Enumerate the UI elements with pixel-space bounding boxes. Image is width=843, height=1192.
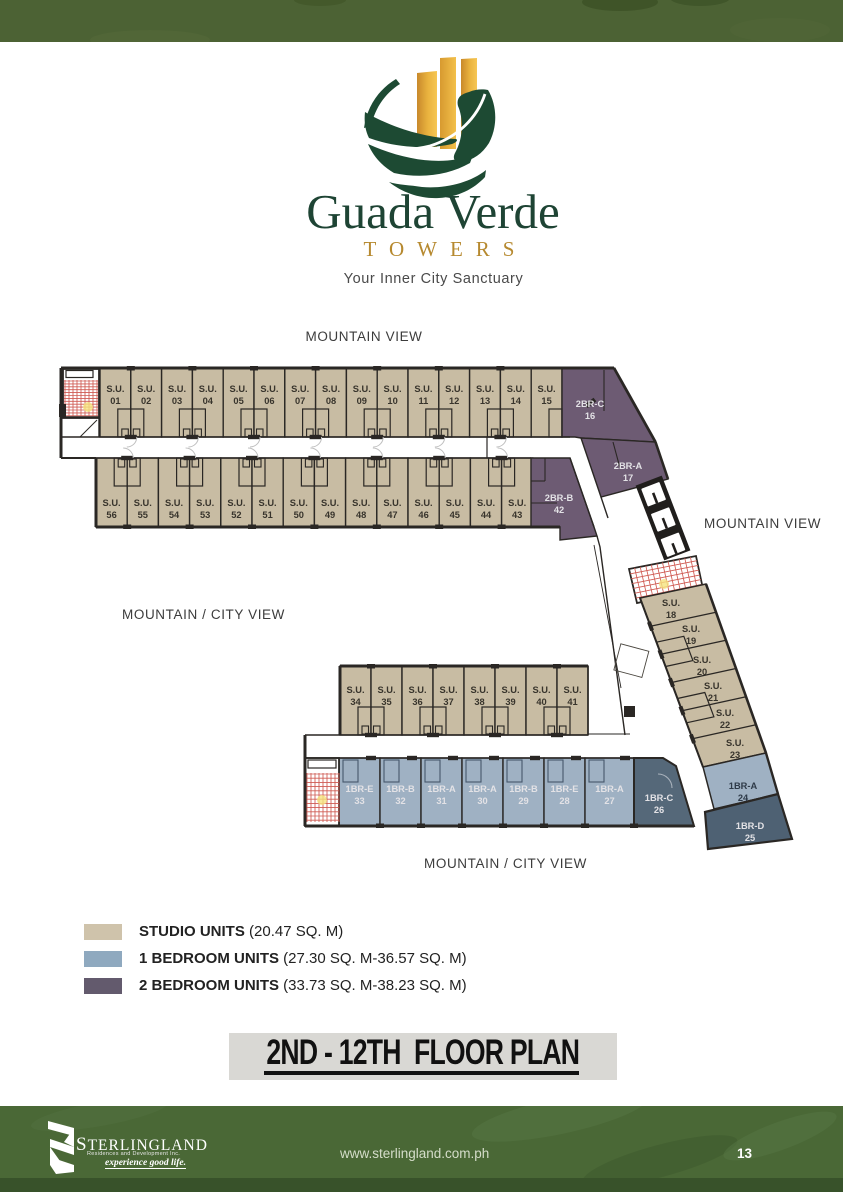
svg-text:48: 48 [356,510,366,520]
svg-text:S.U.: S.U. [501,685,519,695]
svg-text:S.U.: S.U. [446,498,464,508]
svg-text:16: 16 [585,411,595,421]
svg-text:36: 36 [412,697,422,707]
svg-text:S.U.: S.U. [134,498,152,508]
svg-text:S.U.: S.U. [532,685,550,695]
svg-text:20: 20 [697,667,707,677]
svg-text:35: 35 [381,697,391,707]
svg-text:S.U.: S.U. [227,498,245,508]
svg-text:S.U.: S.U. [259,498,277,508]
svg-text:28: 28 [559,796,569,806]
svg-text:46: 46 [418,510,428,520]
svg-text:19: 19 [686,636,696,646]
svg-text:05: 05 [233,396,243,406]
svg-text:S.U.: S.U. [563,685,581,695]
svg-text:04: 04 [203,396,214,406]
svg-text:S.U.: S.U. [260,384,278,394]
svg-text:S.U.: S.U. [538,384,556,394]
svg-text:1BR-A: 1BR-A [595,784,624,794]
svg-text:S.U.: S.U. [352,498,370,508]
svg-text:09: 09 [357,396,367,406]
svg-text:S.U.: S.U. [377,685,395,695]
svg-text:S.U.: S.U. [507,384,525,394]
svg-text:21: 21 [708,693,718,703]
svg-text:1BR-B: 1BR-B [386,784,415,794]
svg-text:32: 32 [395,796,405,806]
svg-text:S.U.: S.U. [415,498,433,508]
svg-text:39: 39 [505,697,515,707]
svg-text:56: 56 [106,510,116,520]
svg-text:2BR-A: 2BR-A [614,461,643,471]
svg-text:S.U.: S.U. [439,685,457,695]
svg-text:47: 47 [387,510,397,520]
svg-text:18: 18 [666,610,676,620]
svg-text:1BR-A: 1BR-A [729,781,758,791]
svg-text:08: 08 [326,396,336,406]
svg-text:34: 34 [350,697,361,707]
svg-text:S.U.: S.U. [476,384,494,394]
svg-text:S.U.: S.U. [199,384,217,394]
svg-text:S.U.: S.U. [508,498,526,508]
svg-text:29: 29 [518,796,528,806]
svg-text:15: 15 [541,396,551,406]
svg-text:10: 10 [387,396,397,406]
svg-text:S.U.: S.U. [321,498,339,508]
svg-text:03: 03 [172,396,182,406]
svg-text:44: 44 [481,510,492,520]
svg-text:22: 22 [720,720,730,730]
svg-text:S.U.: S.U. [693,655,711,665]
svg-text:S.U.: S.U. [682,624,700,634]
svg-text:S.U.: S.U. [470,685,488,695]
svg-text:S.U.: S.U. [290,498,308,508]
svg-text:06: 06 [264,396,274,406]
svg-text:12: 12 [449,396,459,406]
svg-text:38: 38 [474,697,484,707]
svg-text:S.U.: S.U. [196,498,214,508]
svg-text:31: 31 [436,796,446,806]
svg-text:S.U.: S.U. [291,384,309,394]
svg-text:02: 02 [141,396,151,406]
svg-text:S.U.: S.U. [726,738,744,748]
svg-text:S.U.: S.U. [704,681,722,691]
svg-text:S.U.: S.U. [662,598,680,608]
svg-text:27: 27 [604,796,614,806]
svg-text:33: 33 [354,796,364,806]
svg-text:42: 42 [554,505,564,515]
svg-text:11: 11 [418,396,428,406]
svg-text:37: 37 [443,697,453,707]
svg-text:51: 51 [262,510,272,520]
svg-text:14: 14 [511,396,522,406]
svg-text:S.U.: S.U. [137,384,155,394]
svg-text:S.U.: S.U. [322,384,340,394]
svg-text:S.U.: S.U. [445,384,463,394]
svg-text:50: 50 [294,510,304,520]
svg-text:S.U.: S.U. [716,708,734,718]
svg-text:S.U.: S.U. [165,498,183,508]
svg-text:40: 40 [536,697,546,707]
svg-text:13: 13 [480,396,490,406]
svg-text:49: 49 [325,510,335,520]
svg-text:S.U.: S.U. [230,384,248,394]
svg-text:01: 01 [110,396,120,406]
svg-text:S.U.: S.U. [346,685,364,695]
svg-text:S.U.: S.U. [106,384,124,394]
svg-text:25: 25 [745,833,755,843]
svg-text:07: 07 [295,396,305,406]
svg-text:26: 26 [654,805,664,815]
svg-text:1BR-A: 1BR-A [468,784,497,794]
svg-text:55: 55 [138,510,148,520]
svg-text:23: 23 [730,750,740,760]
svg-text:1BR-E: 1BR-E [551,784,579,794]
svg-text:S.U.: S.U. [477,498,495,508]
svg-text:S.U.: S.U. [414,384,432,394]
svg-text:17: 17 [623,473,633,483]
svg-text:S.U.: S.U. [103,498,121,508]
svg-text:30: 30 [477,796,487,806]
svg-text:1BR-A: 1BR-A [427,784,456,794]
svg-text:2BR-C: 2BR-C [576,399,605,409]
svg-text:53: 53 [200,510,210,520]
svg-text:S.U.: S.U. [353,384,371,394]
svg-text:1BR-E: 1BR-E [346,784,374,794]
svg-text:S.U.: S.U. [383,498,401,508]
svg-text:2BR-B: 2BR-B [545,493,574,503]
svg-text:24: 24 [738,793,749,803]
svg-text:1BR-B: 1BR-B [509,784,538,794]
svg-text:S.U.: S.U. [384,384,402,394]
svg-text:S.U.: S.U. [168,384,186,394]
svg-text:1BR-D: 1BR-D [736,821,765,831]
svg-text:52: 52 [231,510,241,520]
svg-text:1BR-C: 1BR-C [645,793,674,803]
svg-text:45: 45 [450,510,460,520]
svg-text:41: 41 [567,697,577,707]
svg-text:43: 43 [512,510,522,520]
svg-text:54: 54 [169,510,180,520]
svg-text:S.U.: S.U. [408,685,426,695]
